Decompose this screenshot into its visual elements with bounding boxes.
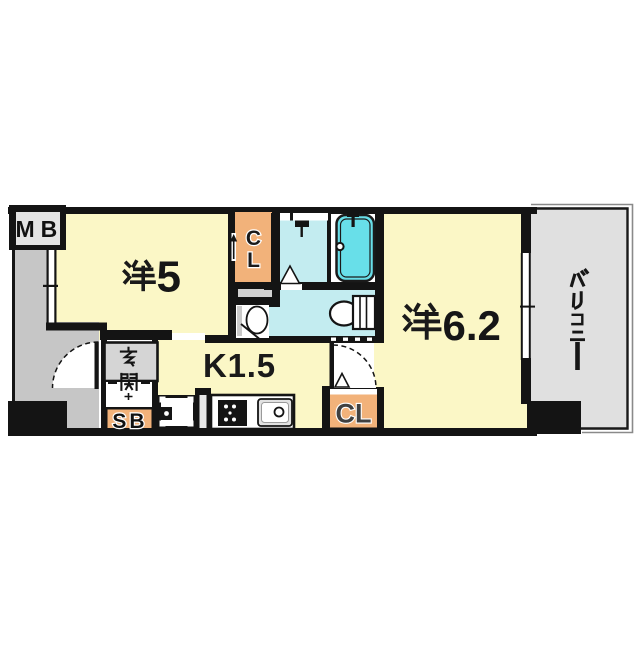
svg-text:6.2: 6.2 — [443, 302, 501, 349]
svg-text:SB: SB — [112, 410, 147, 433]
svg-text:K1.5: K1.5 — [203, 347, 276, 384]
svg-text:C: C — [246, 227, 261, 250]
svg-text:L: L — [247, 249, 260, 272]
svg-text:5: 5 — [157, 253, 181, 302]
svg-text:CL: CL — [336, 399, 372, 429]
svg-text:MB: MB — [16, 216, 64, 242]
